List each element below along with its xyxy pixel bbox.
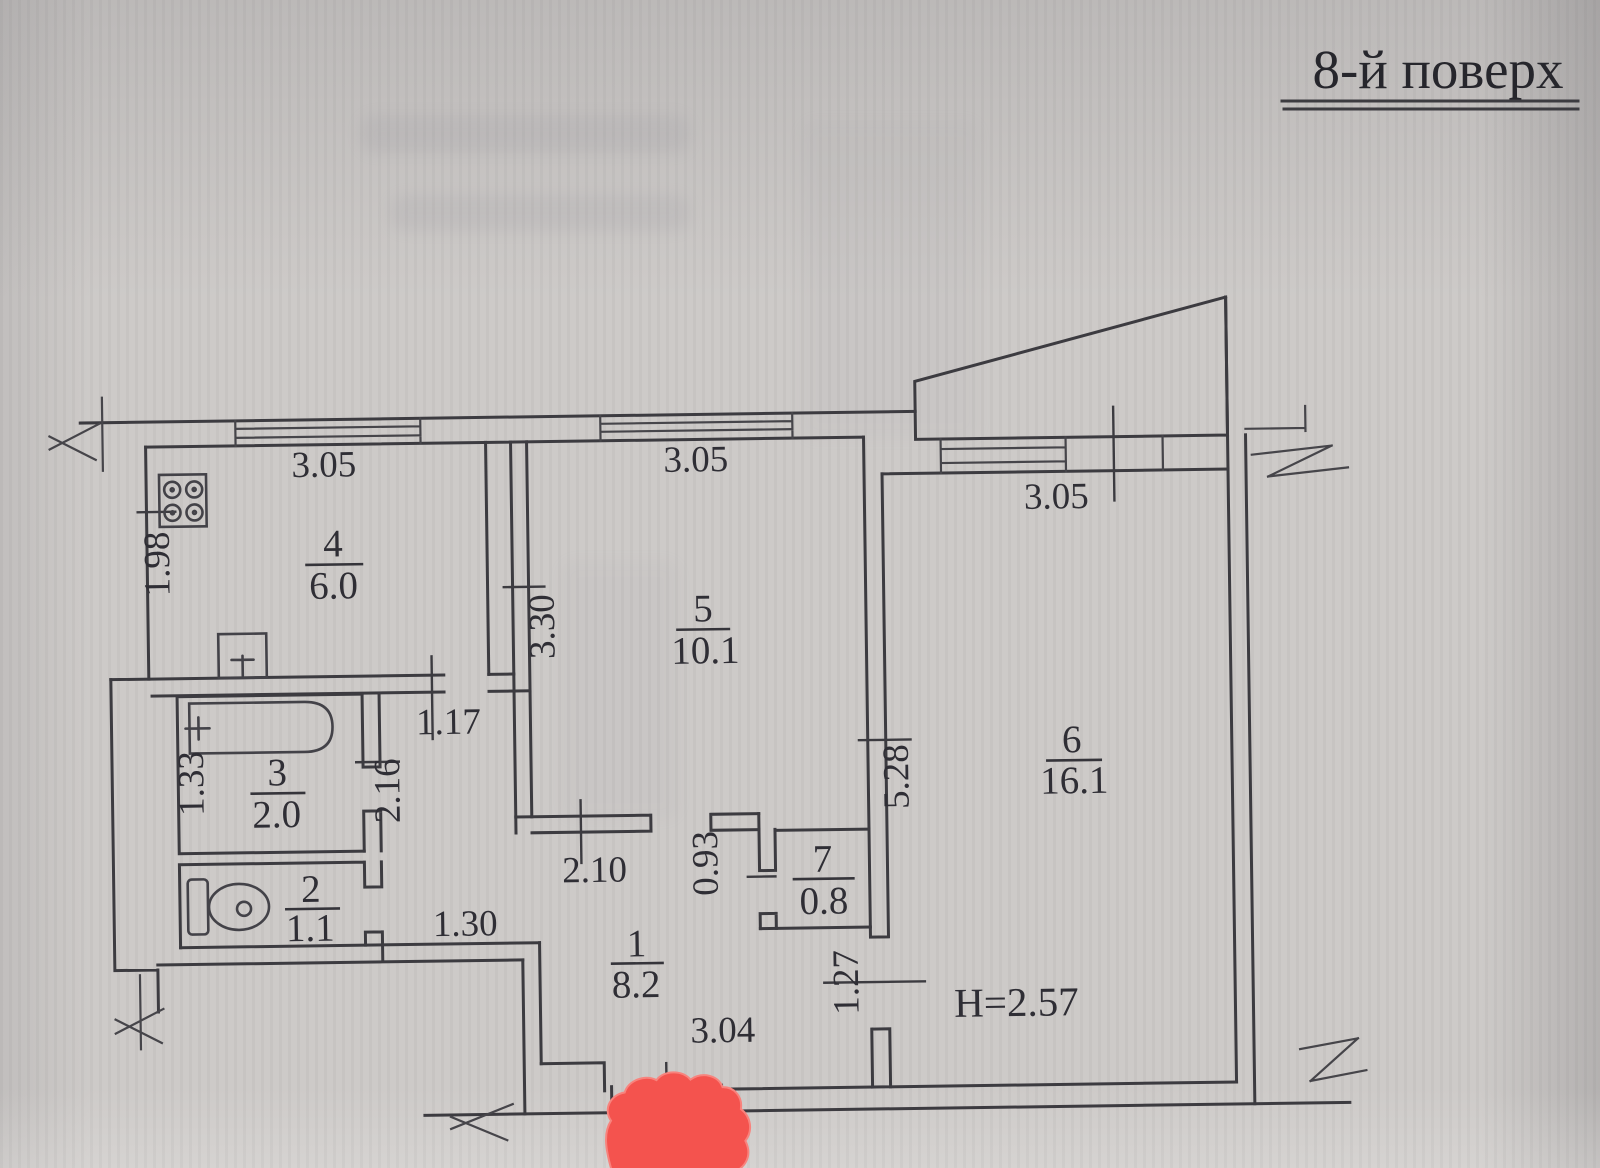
floorplan-drawing: 8-й поверх bbox=[0, 0, 1600, 1168]
dim-room6-door: 1.27 bbox=[826, 950, 868, 1015]
title-block: 8-й поверх bbox=[1282, 39, 1578, 109]
room-area: 10.1 bbox=[671, 629, 740, 673]
apartment-plan: 4 6.0 5 10.1 6 16.1 3 2.0 bbox=[48, 295, 1368, 1168]
scanned-floorplan-page: 8-й поверх bbox=[0, 0, 1600, 1168]
room-number: 5 bbox=[693, 587, 713, 630]
dim-room5-width: 3.05 bbox=[663, 439, 728, 481]
break-top-right bbox=[1245, 405, 1348, 476]
dim-kitchen-width: 3.05 bbox=[291, 444, 356, 486]
dim-room6-width: 3.05 bbox=[1024, 476, 1089, 518]
room-1-hall: 1 8.2 bbox=[610, 922, 664, 1007]
room-number: 1 bbox=[627, 922, 647, 965]
dim-hall-depth: 2.16 bbox=[367, 758, 409, 823]
exterior-walls bbox=[79, 295, 1350, 1120]
break-bottom-right bbox=[1300, 1038, 1367, 1081]
floor-title: 8-й поверх bbox=[1313, 39, 1564, 100]
room-4-kitchen: 4 6.0 bbox=[305, 522, 364, 608]
room-6: 6 16.1 bbox=[1039, 718, 1108, 803]
title-underline bbox=[1282, 101, 1578, 109]
balcony-outline bbox=[914, 297, 1228, 439]
break-entrance-left bbox=[451, 1104, 513, 1141]
room-2-wc: 2 1.1 bbox=[284, 867, 340, 950]
dim-room6-depth: 5.28 bbox=[876, 744, 918, 809]
dim-room5-bottom: 2.10 bbox=[562, 849, 627, 891]
dim-niche-depth: 0.93 bbox=[685, 831, 727, 896]
room-area: 16.1 bbox=[1040, 759, 1109, 803]
stove-icon bbox=[159, 474, 207, 527]
room-7-closet: 7 0.8 bbox=[792, 837, 855, 923]
dim-wc-passage: 1.30 bbox=[433, 903, 498, 945]
dim-kitchen-depth: 1.98 bbox=[137, 531, 179, 596]
room-area: 6.0 bbox=[309, 564, 358, 608]
bathtub-icon bbox=[185, 702, 333, 754]
redaction-blob bbox=[605, 1071, 751, 1168]
room-3-bath: 3 2.0 bbox=[250, 751, 306, 837]
room-area: 8.2 bbox=[611, 963, 660, 1007]
room5-window bbox=[600, 413, 792, 441]
room-number: 4 bbox=[323, 522, 343, 565]
break-top-left bbox=[49, 398, 103, 472]
room-area: 2.0 bbox=[252, 793, 301, 837]
room-5: 5 10.1 bbox=[670, 587, 739, 673]
room-area: 0.8 bbox=[799, 879, 848, 923]
room-number: 2 bbox=[301, 868, 321, 911]
room-number: 3 bbox=[267, 751, 287, 794]
room6-window bbox=[941, 436, 1163, 473]
room-number: 6 bbox=[1062, 718, 1082, 761]
sink-icon bbox=[218, 633, 267, 678]
room-area: 1.1 bbox=[286, 907, 335, 951]
dim-bath-depth: 1.33 bbox=[171, 751, 213, 816]
dim-ceiling-height: H=2.57 bbox=[954, 978, 1079, 1026]
dim-hall-passage: 1.17 bbox=[416, 701, 481, 743]
toilet-icon bbox=[188, 878, 270, 934]
dim-room5-depth: 3.30 bbox=[522, 594, 564, 659]
room-number: 7 bbox=[812, 838, 832, 881]
dim-hall-width: 3.04 bbox=[690, 1010, 755, 1052]
kitchen-window bbox=[235, 418, 420, 446]
